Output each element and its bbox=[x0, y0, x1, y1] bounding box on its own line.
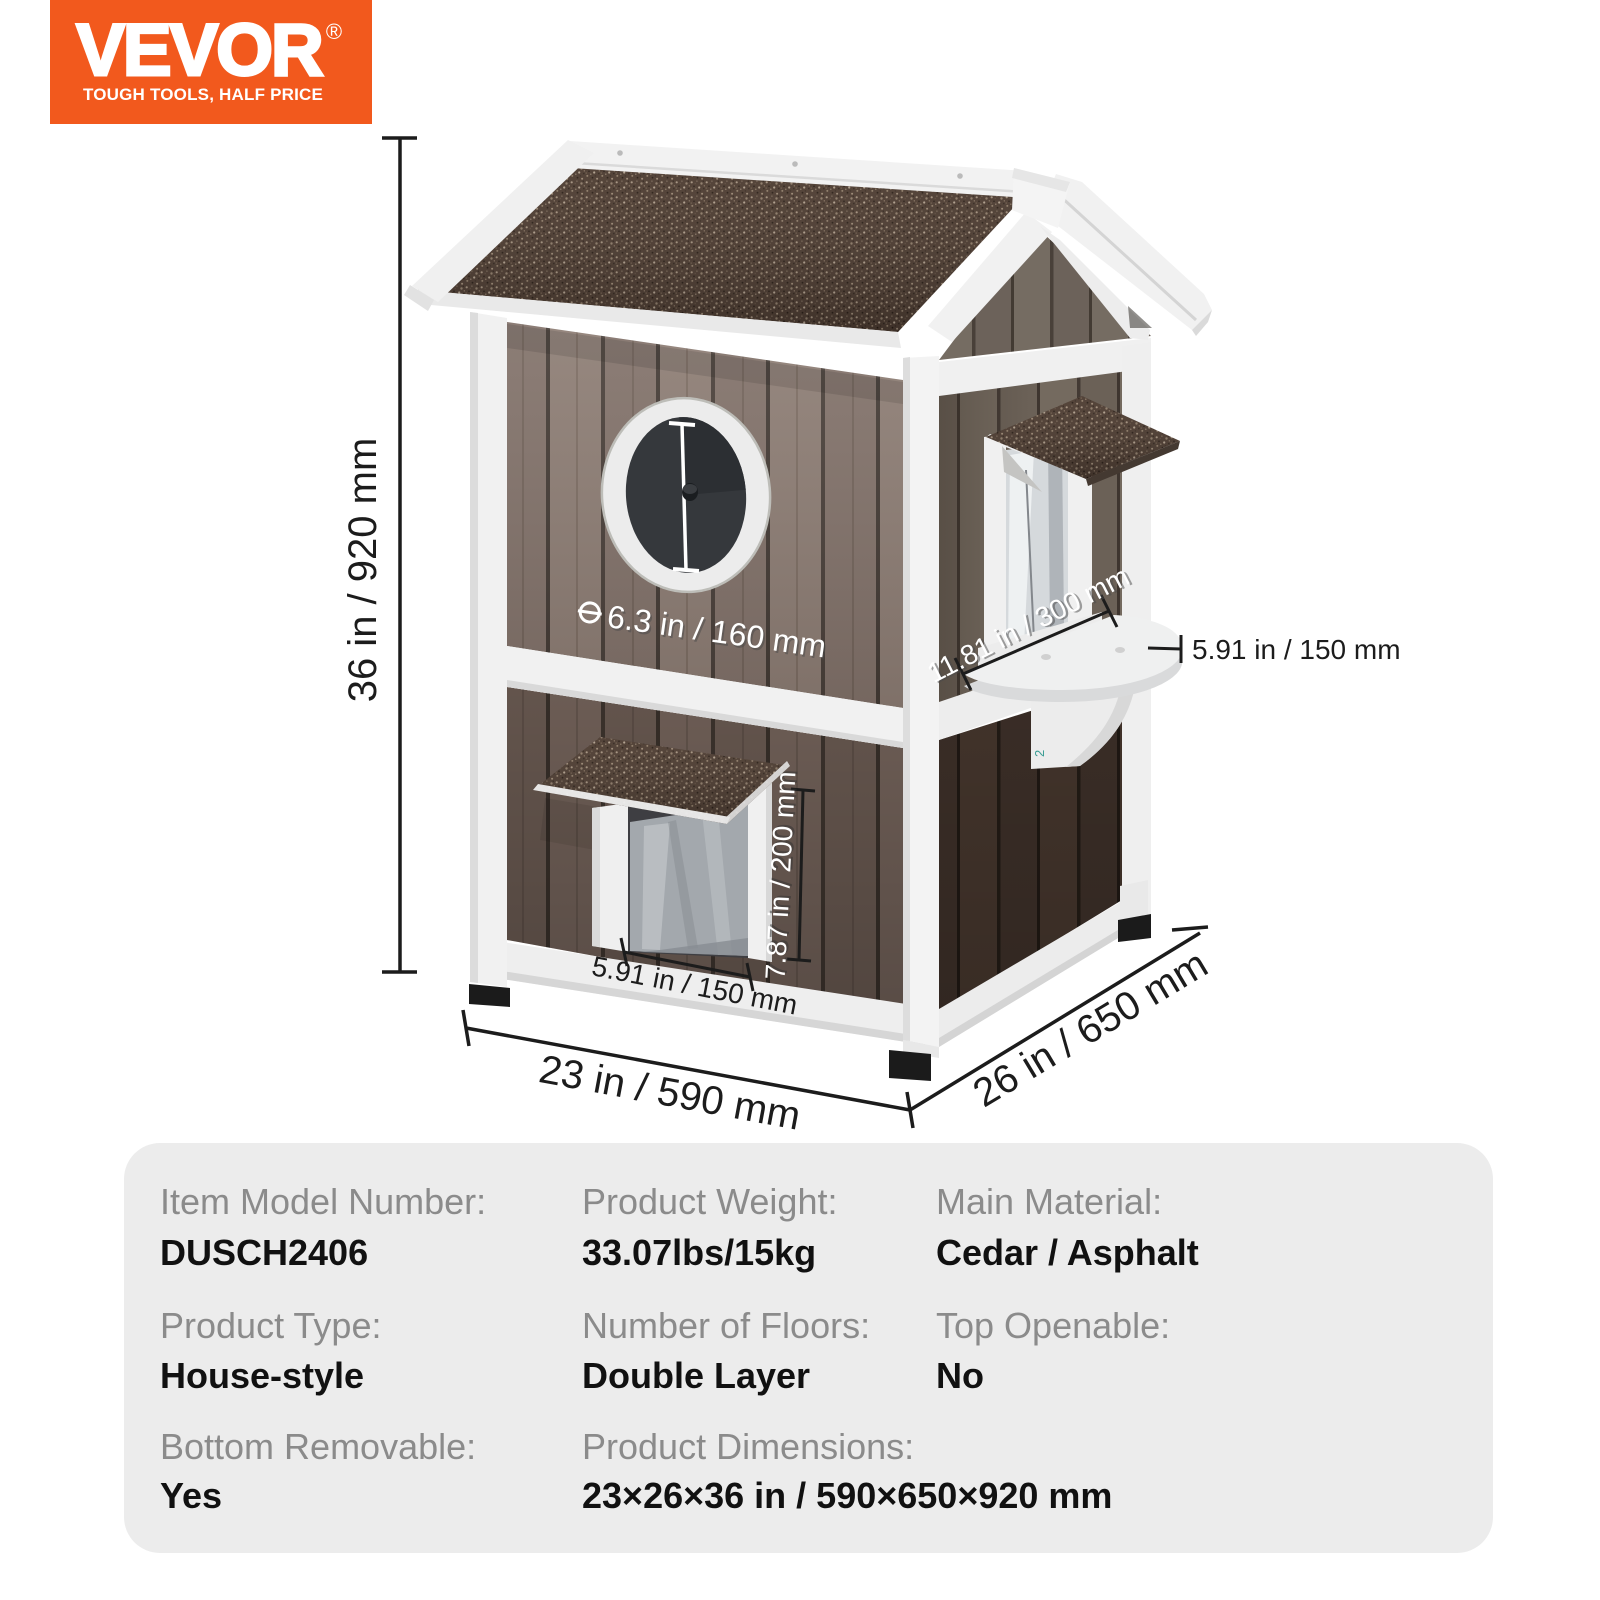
svg-text:Product Dimensions:: Product Dimensions: bbox=[582, 1426, 914, 1467]
svg-text:®: ® bbox=[326, 19, 342, 44]
svg-text:No: No bbox=[936, 1355, 984, 1396]
svg-text:Item Model Number:: Item Model Number: bbox=[160, 1181, 486, 1222]
svg-text:Main Material:: Main Material: bbox=[936, 1181, 1162, 1222]
svg-text:Double Layer: Double Layer bbox=[582, 1355, 810, 1396]
svg-text:VEVOR: VEVOR bbox=[76, 10, 323, 91]
svg-text:Bottom Removable:: Bottom Removable: bbox=[160, 1426, 476, 1467]
svg-text:DUSCH2406: DUSCH2406 bbox=[160, 1232, 368, 1273]
svg-text:House-style: House-style bbox=[160, 1355, 364, 1396]
svg-text:Yes: Yes bbox=[160, 1475, 222, 1516]
svg-text:Number of Floors:: Number of Floors: bbox=[582, 1305, 870, 1346]
svg-text:TOUGH TOOLS, HALF PRICE: TOUGH TOOLS, HALF PRICE bbox=[83, 85, 323, 104]
svg-text:Cedar / Asphalt: Cedar / Asphalt bbox=[936, 1232, 1199, 1273]
svg-text:23×26×36 in / 590×650×920 mm: 23×26×36 in / 590×650×920 mm bbox=[582, 1475, 1112, 1516]
svg-text:33.07lbs/15kg: 33.07lbs/15kg bbox=[582, 1232, 816, 1273]
svg-text:36 in / 920 mm: 36 in / 920 mm bbox=[341, 438, 385, 703]
svg-text:5.91 in / 150 mm: 5.91 in / 150 mm bbox=[1192, 634, 1401, 665]
svg-text:Product Weight:: Product Weight: bbox=[582, 1181, 837, 1222]
svg-text:Product Type:: Product Type: bbox=[160, 1305, 381, 1346]
svg-text:Top Openable:: Top Openable: bbox=[936, 1305, 1170, 1346]
svg-text:2: 2 bbox=[1032, 750, 1047, 757]
